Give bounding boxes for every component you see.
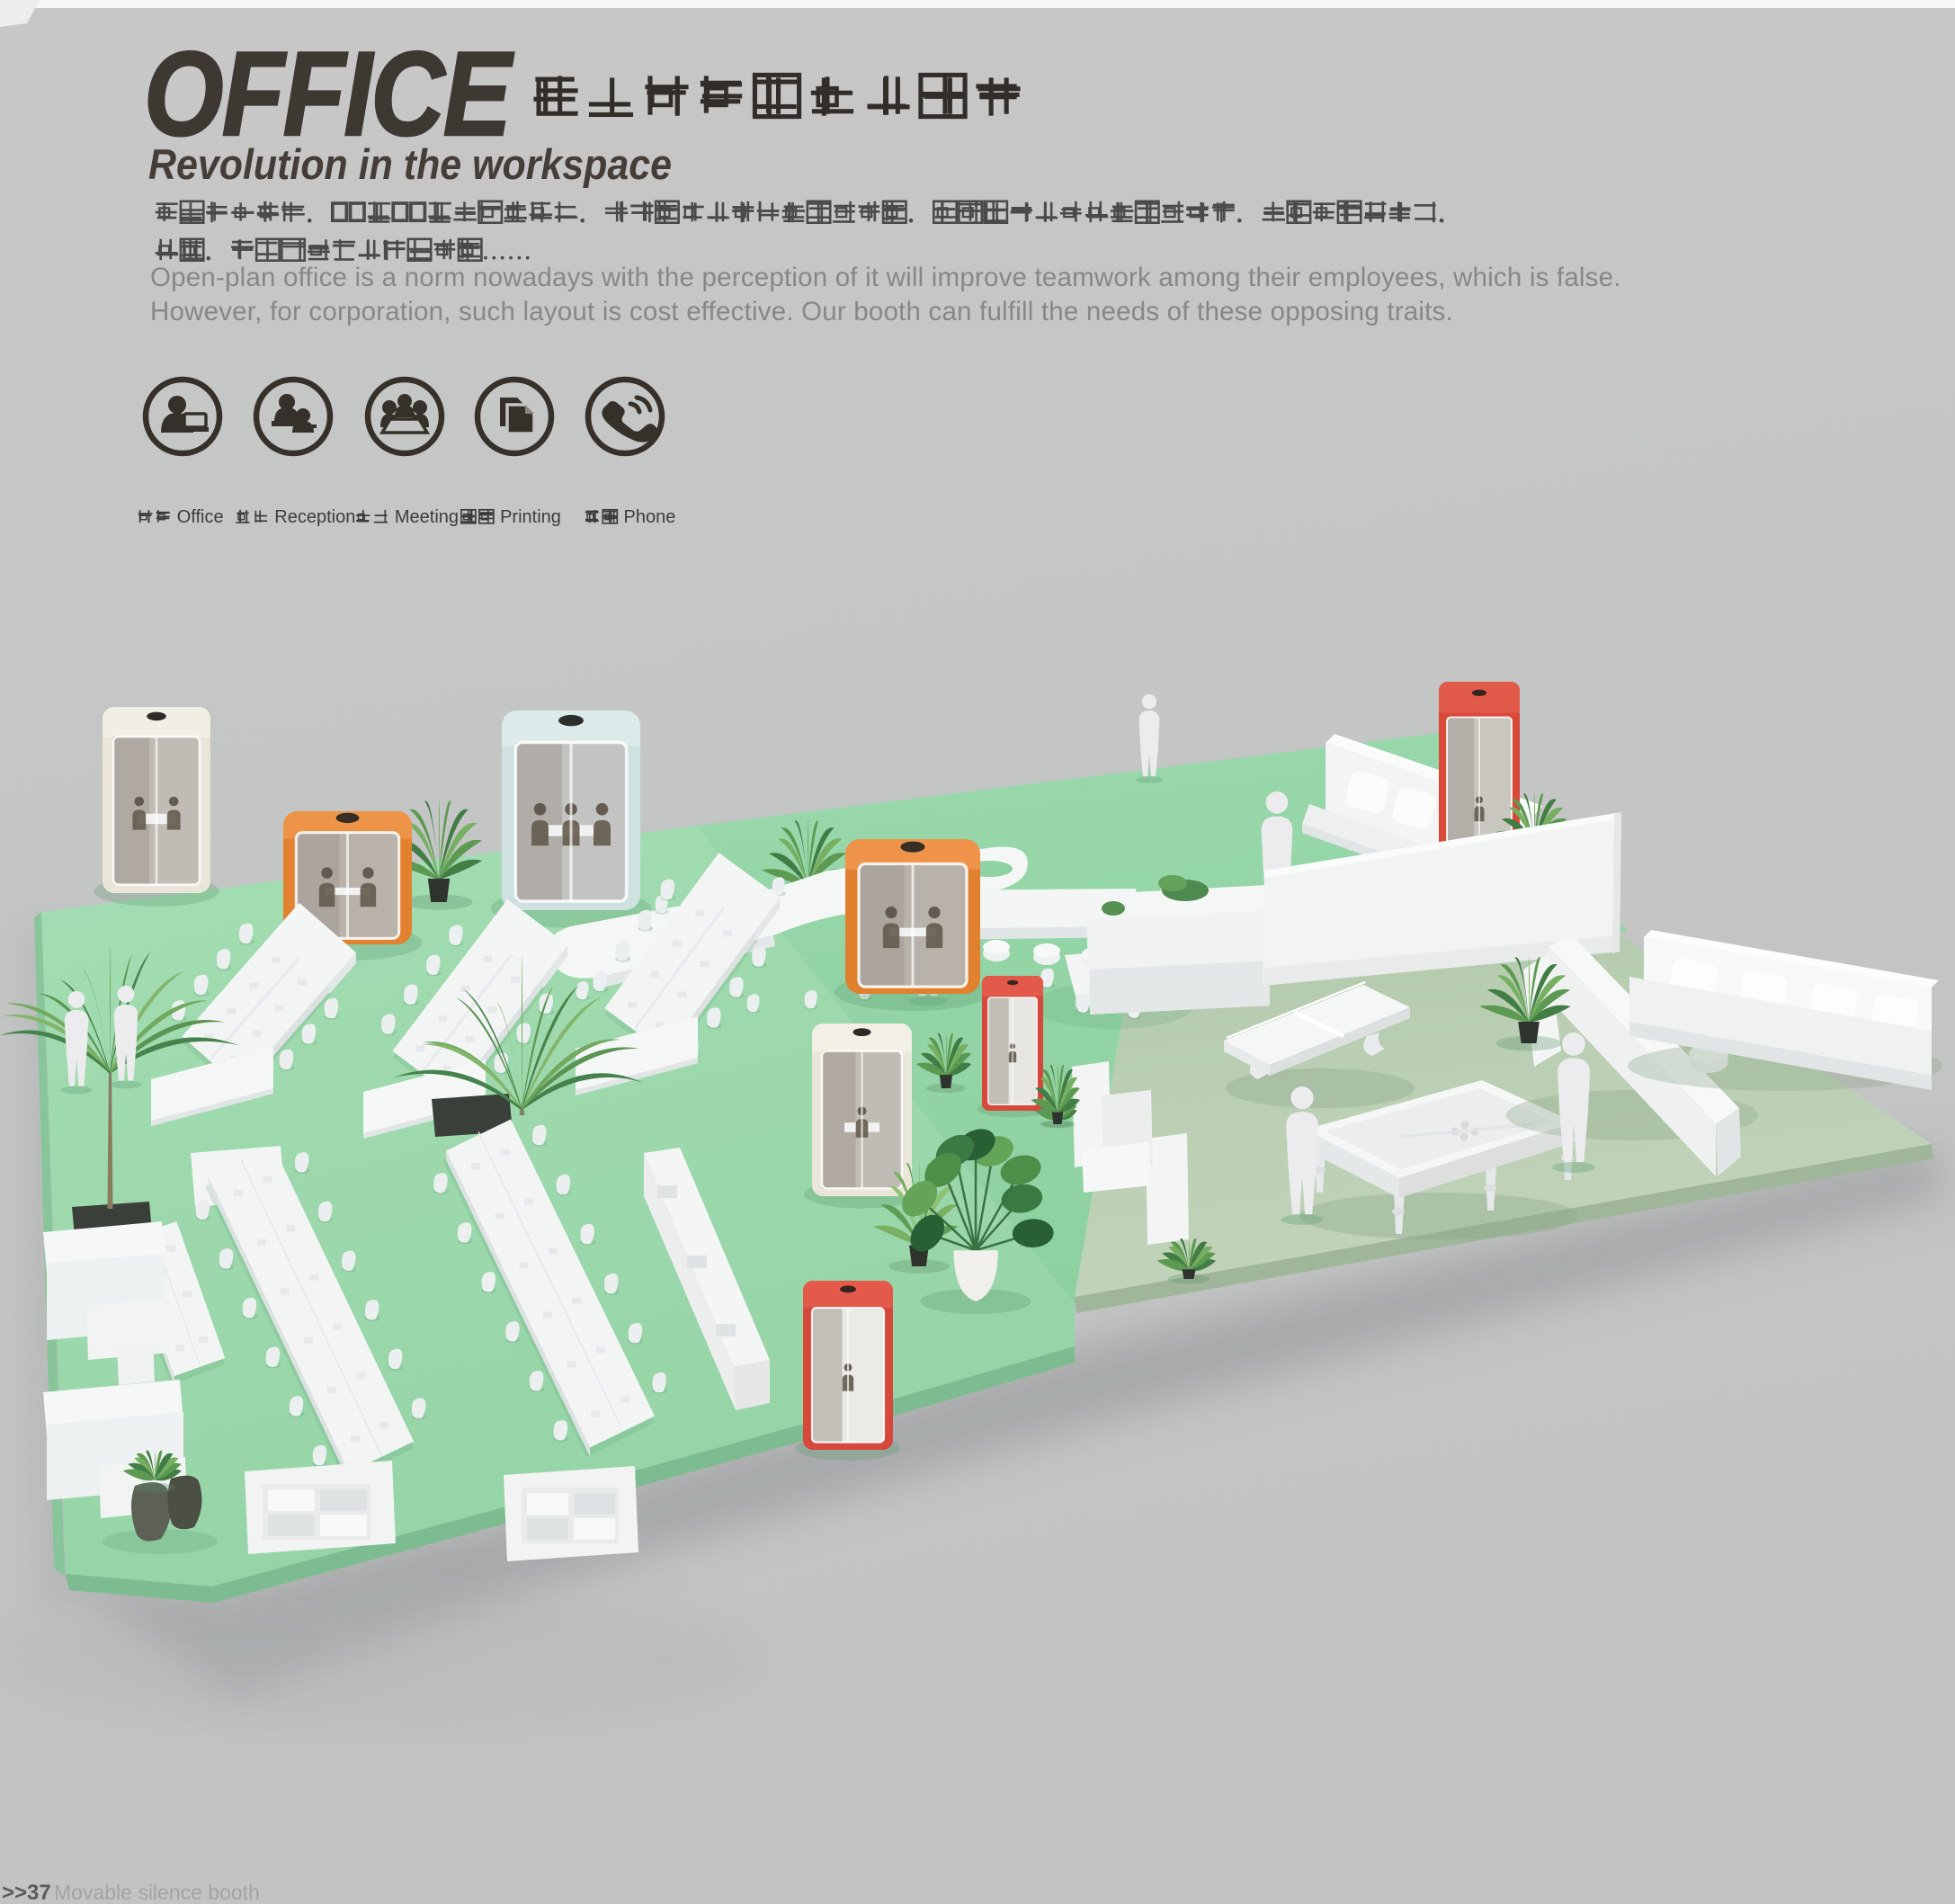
svg-text:Printing: Printing bbox=[500, 507, 561, 527]
svg-text:Reception: Reception bbox=[274, 507, 355, 527]
svg-text:Revolution in the workspace: Revolution in the workspace bbox=[148, 140, 672, 188]
svg-text:Movable silence booth: Movable silence booth bbox=[54, 1881, 260, 1904]
svg-text:Meeting: Meeting bbox=[395, 507, 459, 527]
svg-text:However, for corporation, such: However, for corporation, such layout is… bbox=[150, 297, 1453, 326]
svg-text:Office: Office bbox=[177, 507, 224, 527]
svg-text:Phone: Phone bbox=[624, 507, 676, 527]
svg-text:Open-plan office is a norm now: Open-plan office is a norm nowadays with… bbox=[150, 263, 1621, 292]
svg-text:>>37: >>37 bbox=[2, 1881, 51, 1904]
